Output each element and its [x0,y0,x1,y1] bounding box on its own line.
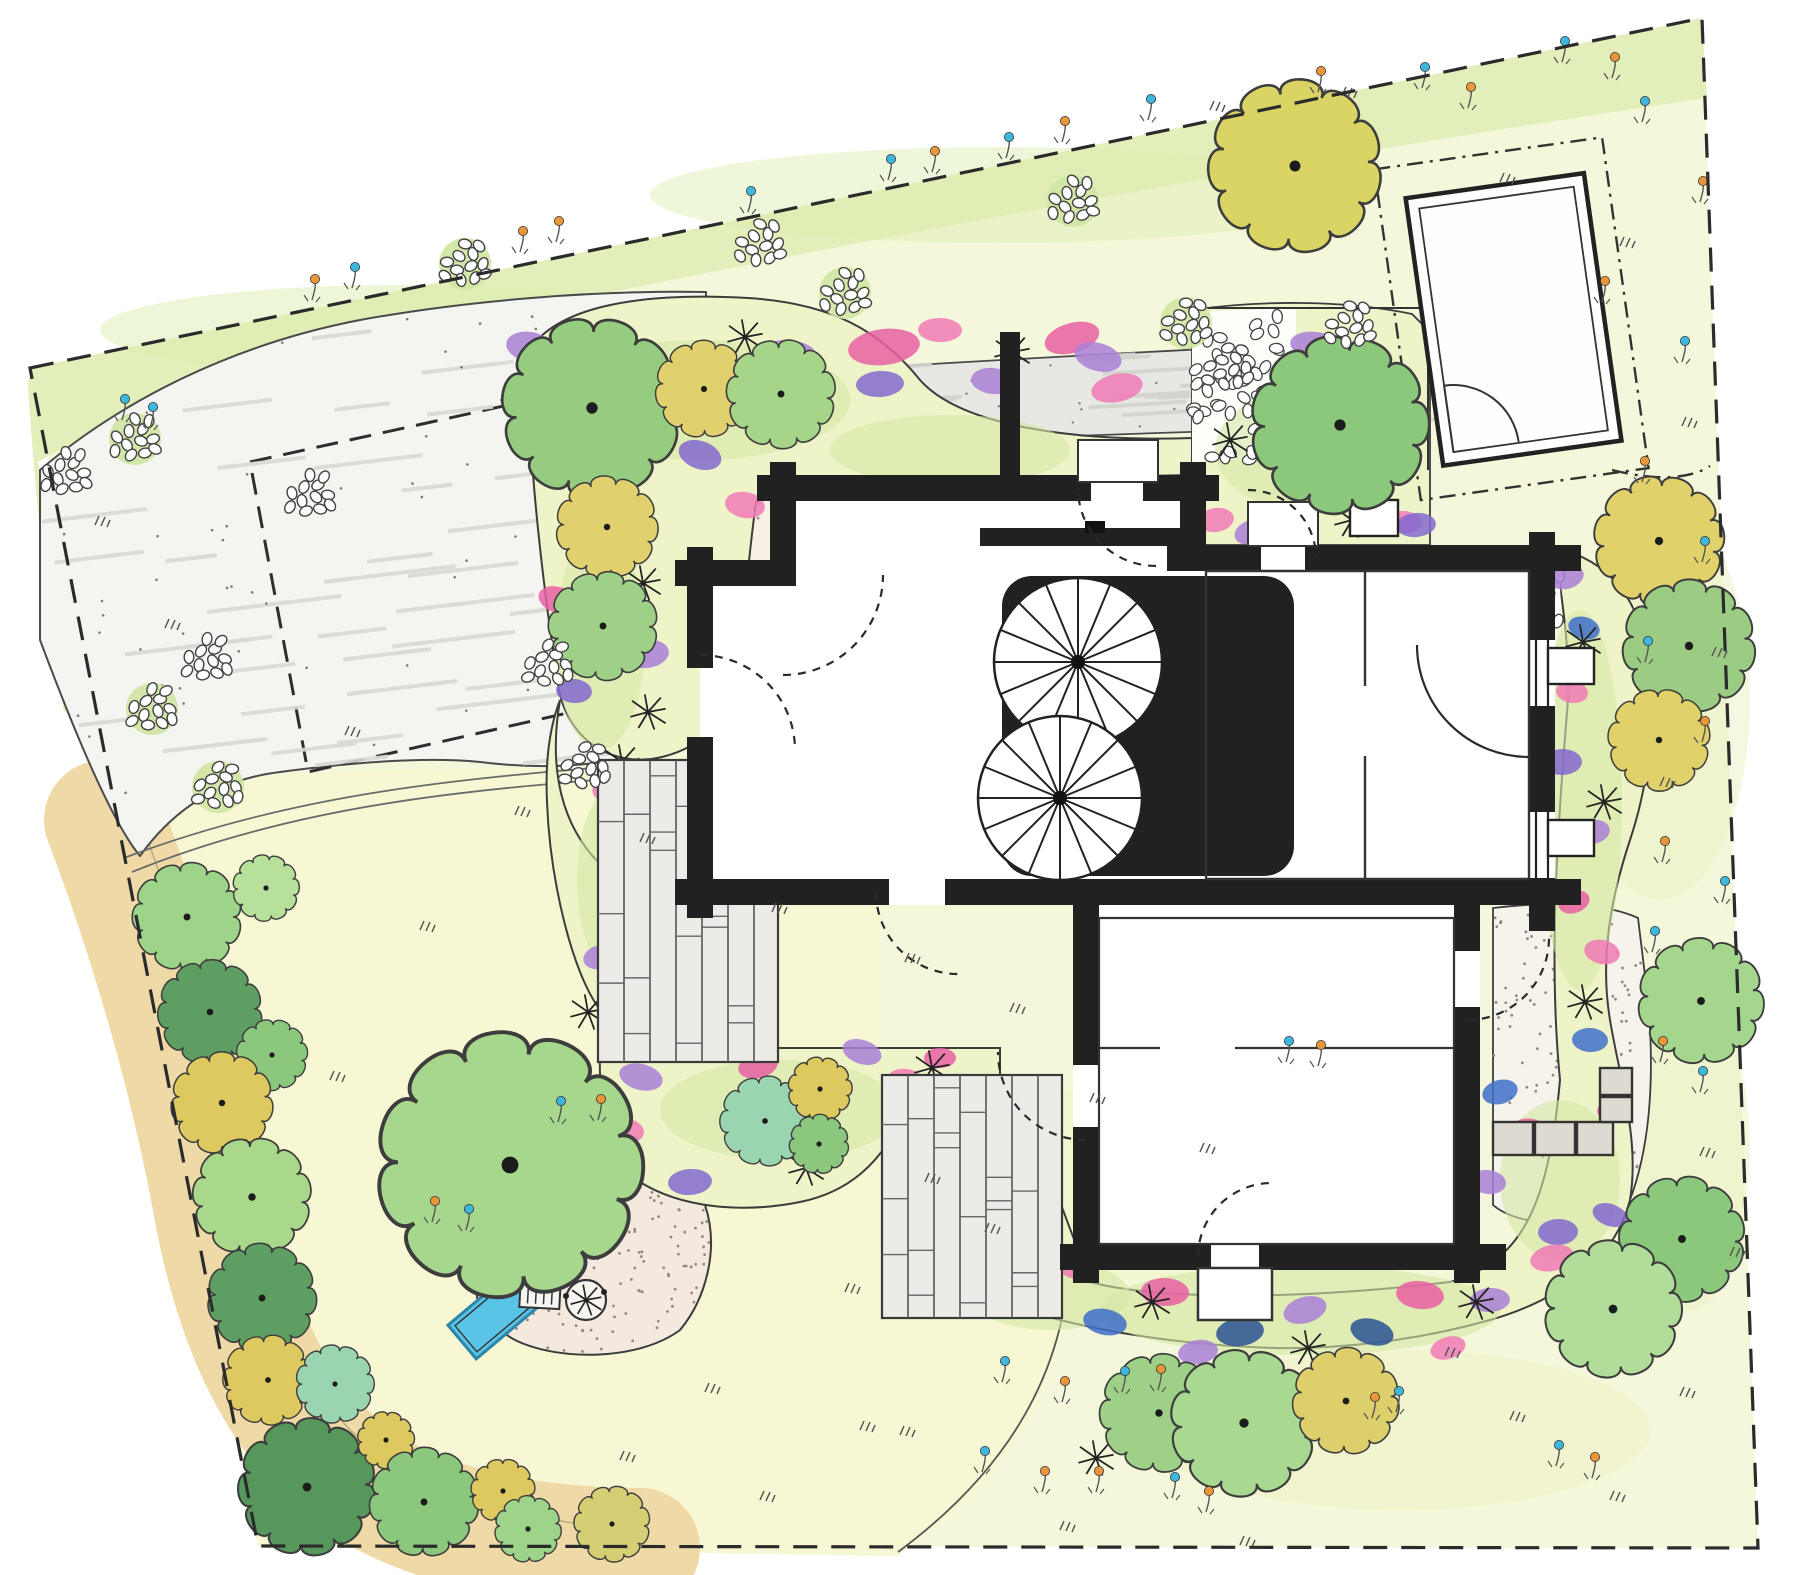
meadow-flower [1310,66,1326,94]
window-box-east-2 [1548,820,1594,856]
window-box-east-1 [1548,648,1594,684]
meadow-flower [548,216,564,244]
garden-plan-drawing [0,0,1800,1575]
timber-deck [882,1075,1062,1318]
courtyard-door-step [1248,502,1318,546]
garden-plan-canvas [0,0,1800,1575]
south-porch [1198,1268,1272,1320]
meadow-flower [512,226,528,254]
entrance-door-step [1078,440,1158,482]
bed-wash [830,415,1070,485]
meadow-flower [1054,116,1070,144]
meadow-flower [1140,94,1156,122]
grass-tuft [1210,101,1225,112]
spiral-staircase [978,716,1142,880]
